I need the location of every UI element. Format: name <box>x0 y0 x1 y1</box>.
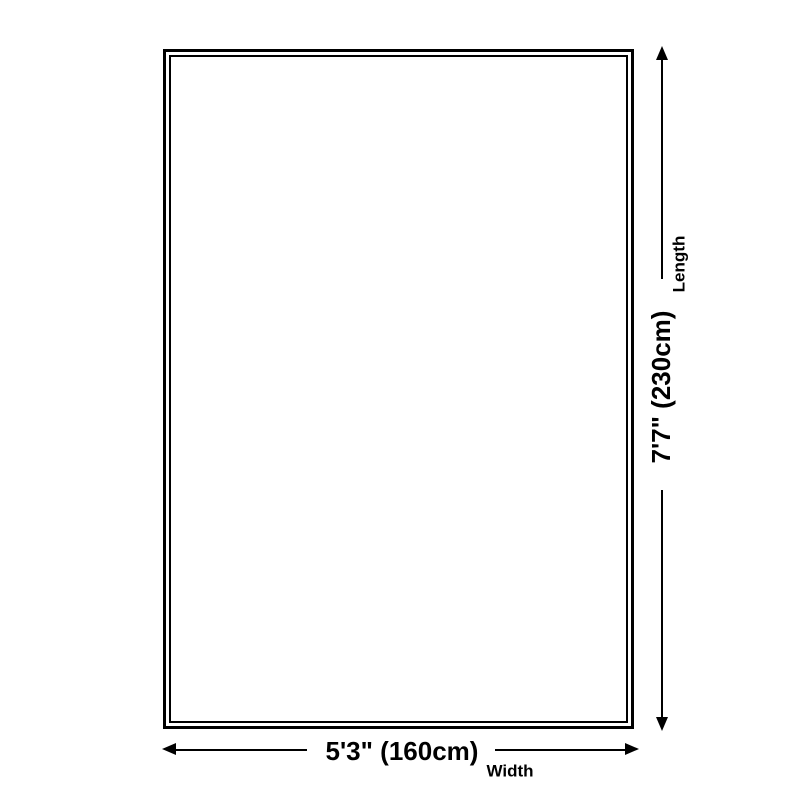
width-value: 5'3" (160cm) <box>326 738 479 764</box>
width-dimension-line-left <box>175 749 307 751</box>
length-dimension-line-top <box>661 58 663 279</box>
width-dimension-line-right <box>495 749 626 751</box>
length-value: 7'7" (230cm) <box>648 311 674 464</box>
arrow-right-icon <box>625 743 639 755</box>
width-label: Width <box>486 763 533 780</box>
rug-outline <box>163 49 634 729</box>
arrow-down-icon <box>656 717 668 731</box>
arrow-left-icon <box>162 743 176 755</box>
length-dimension-line-bottom <box>661 490 663 718</box>
length-label: Length <box>671 236 688 293</box>
rug-outline-inner <box>169 55 628 723</box>
rug-dimension-diagram: Length 7'7" (230cm) 5'3" (160cm) Width <box>0 0 800 800</box>
